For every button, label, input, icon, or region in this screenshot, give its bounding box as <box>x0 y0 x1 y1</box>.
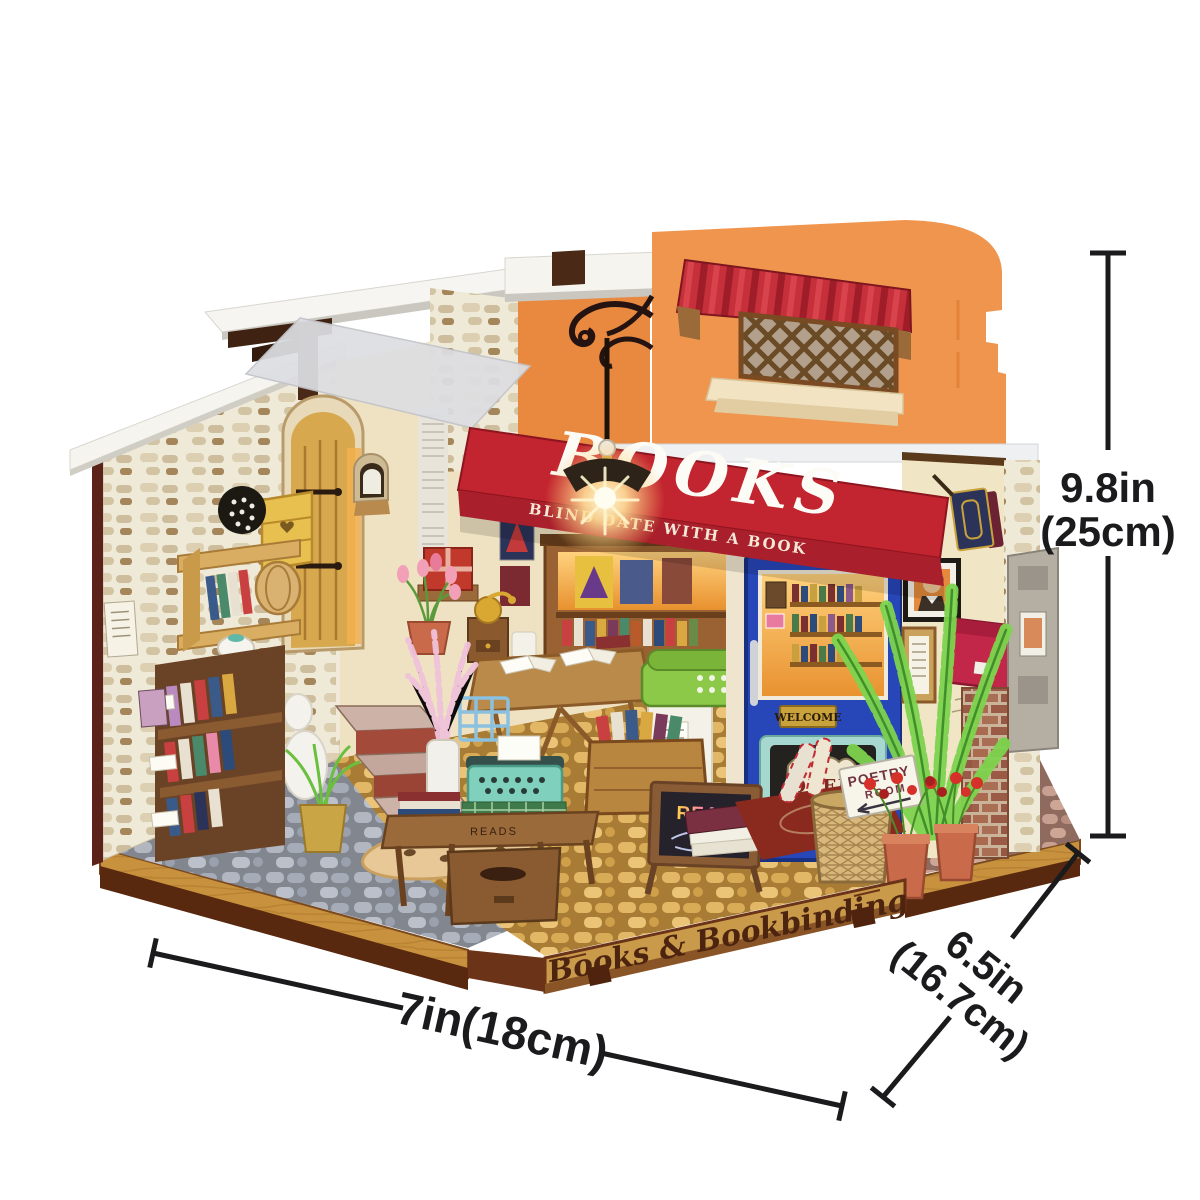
height-imperial-label: 9.8in <box>1060 464 1156 511</box>
welcome-sign-text: WELCOME <box>773 711 841 724</box>
postcard-sticker <box>766 614 784 628</box>
stool <box>448 848 560 924</box>
table-engraving-text: READS <box>470 826 518 839</box>
miniature-bookshop-illustration: WELCOME OPEN <box>0 0 1200 1200</box>
tiered-book-shelf <box>147 645 285 862</box>
stacked-books <box>398 792 460 817</box>
wall-mount-bracket <box>1008 548 1058 752</box>
welcome-plaque: WELCOME <box>773 706 841 727</box>
product-photo-canvas: WELCOME OPEN <box>0 0 1200 1200</box>
door-handle <box>750 640 758 706</box>
wall-vent <box>218 486 266 534</box>
height-dimension: 9.8in (25cm) <box>1040 253 1175 836</box>
width-label: 7in(18cm) <box>392 981 613 1078</box>
wall-niche <box>354 454 390 516</box>
wooden-barrel <box>256 562 300 614</box>
height-metric-label: (25cm) <box>1040 508 1175 555</box>
